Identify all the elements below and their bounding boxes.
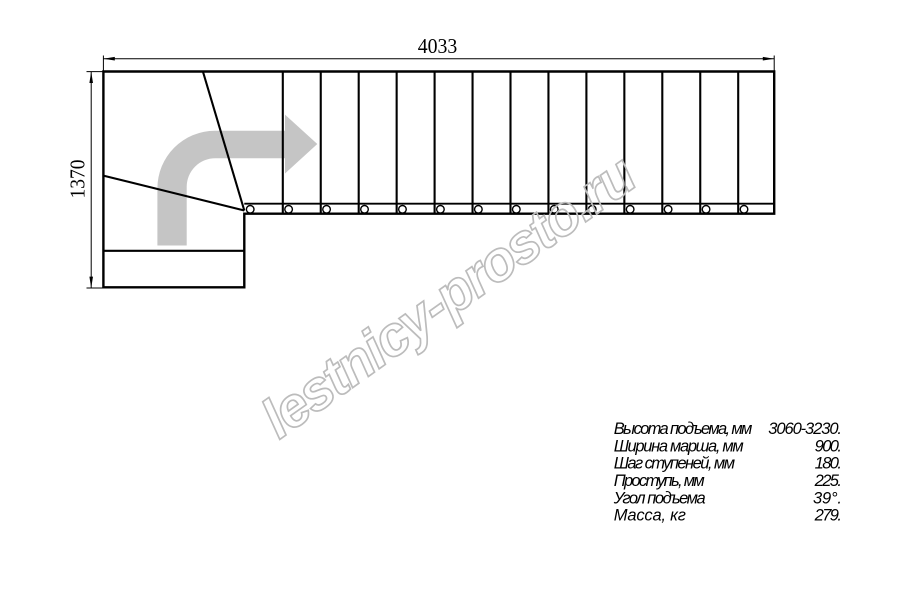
svg-text:Угол подъема: Угол подъема xyxy=(613,489,706,507)
svg-text:Шаг ступеней, мм: Шаг ступеней, мм xyxy=(614,455,735,473)
svg-text:Высота подъема, мм: Высота подъема, мм xyxy=(614,420,753,438)
svg-text:Ширина марша, мм: Ширина марша, мм xyxy=(614,437,744,455)
svg-text:4033: 4033 xyxy=(418,34,458,58)
svg-text:Проступь, мм: Проступь, мм xyxy=(614,472,705,490)
svg-text:1370: 1370 xyxy=(66,160,90,199)
svg-text:Масса, кг: Масса, кг xyxy=(614,507,686,525)
svg-text:3060-3230.: 3060-3230. xyxy=(768,420,842,438)
svg-text:lestnicy-prosto.ru: lestnicy-prosto.ru xyxy=(249,142,647,450)
svg-text:180.: 180. xyxy=(815,455,842,473)
svg-text:225.: 225. xyxy=(814,472,842,490)
svg-text:279.: 279. xyxy=(814,507,842,525)
svg-text:900.: 900. xyxy=(815,437,842,455)
svg-text:39°.: 39°. xyxy=(813,489,842,507)
